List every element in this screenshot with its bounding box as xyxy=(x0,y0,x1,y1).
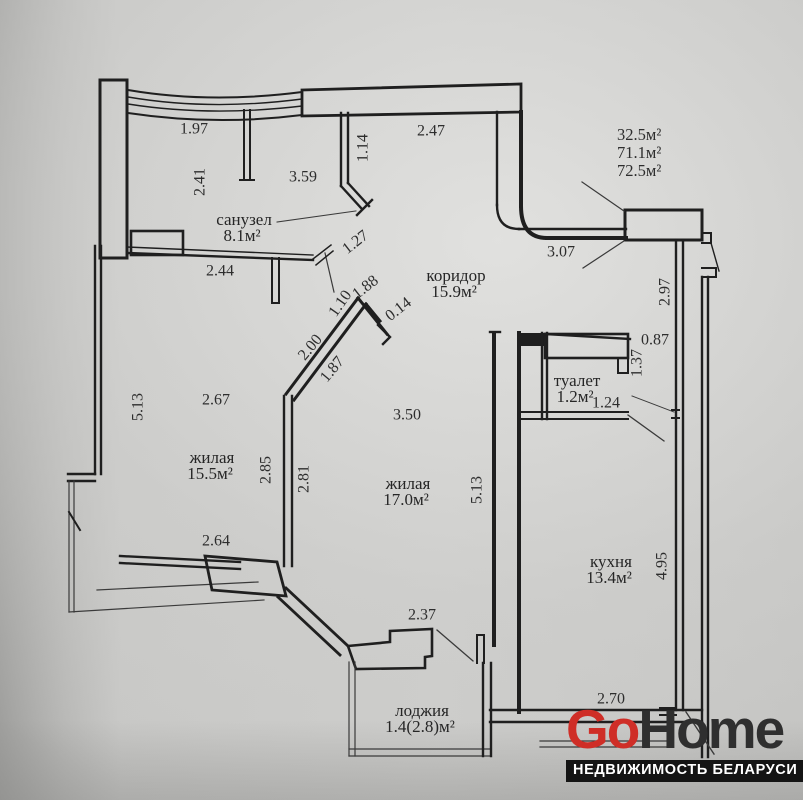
dimension-label: 1.87 xyxy=(317,353,348,385)
entrance-door-swing xyxy=(711,243,719,271)
leader-line xyxy=(583,241,624,268)
dimension-label: 4.95 xyxy=(654,552,671,580)
area-summary-item: 32.5м² xyxy=(617,125,661,144)
corridor-top-wall xyxy=(302,84,521,116)
dimension-label: 1.37 xyxy=(629,349,646,377)
floorplan-photo: 32.5м²71.1м²72.5м² 1.972.413.591.142.471… xyxy=(0,0,803,800)
dimension-label: 1.14 xyxy=(355,134,372,162)
dimension-label: 2.97 xyxy=(657,278,674,306)
bathroom-window-curve xyxy=(128,90,302,98)
leader-line xyxy=(582,182,624,211)
gohome-logo: GoHome НЕДВИЖИМОСТЬ БЕЛАРУСИ xyxy=(566,702,803,782)
logo-wordmark: GoHome xyxy=(566,702,803,757)
dimension-label: 1.97 xyxy=(180,121,208,138)
dimension-label: 0.87 xyxy=(641,332,669,349)
room-area-label: 15.5м² xyxy=(187,464,233,483)
bay-bottom-block xyxy=(348,629,432,669)
dimension-label: 2.47 xyxy=(417,123,445,140)
dimension-label: 0.14 xyxy=(382,294,415,325)
room-area-label: 17.0м² xyxy=(383,490,429,509)
dimension-label: 3.59 xyxy=(289,169,317,186)
room-area-label: 1.4(2.8)м² xyxy=(385,717,455,736)
entrance-wall-block xyxy=(625,210,702,240)
leader-line xyxy=(277,211,356,222)
dimension-label: 2.37 xyxy=(408,607,436,624)
room-labels: санузел8.1м²коридор15.9м²жилая15.5м²жила… xyxy=(187,210,632,736)
dimension-label: 2.64 xyxy=(202,533,230,550)
wall-pillar-topleft xyxy=(100,80,127,258)
dimension-label: 3.50 xyxy=(393,407,421,424)
logo-home: Home xyxy=(638,698,783,760)
dimension-label: 1.24 xyxy=(592,395,620,412)
room-area-label: 8.1м² xyxy=(223,226,260,245)
dimension-label: 2.67 xyxy=(202,392,230,409)
dimension-label: 2.85 xyxy=(258,456,275,484)
area-summary-item: 71.1м² xyxy=(617,143,661,162)
room-area-label: 15.9м² xyxy=(431,282,477,301)
logo-tagline: НЕДВИЖИМОСТЬ БЕЛАРУСИ xyxy=(566,760,803,782)
dimension-label: 1.27 xyxy=(339,227,372,258)
room-area-label: 13.4м² xyxy=(586,568,632,587)
dimension-label: 2.44 xyxy=(206,263,234,280)
dimension-label: 2.41 xyxy=(192,168,209,196)
wall-mass-bathroom xyxy=(131,231,183,255)
dimension-label: 5.13 xyxy=(469,476,486,504)
bathroom-door-swing xyxy=(325,253,334,292)
area-summary-item: 72.5м² xyxy=(617,161,661,180)
room-area-label: 1.2м² xyxy=(556,387,593,406)
dimension-label: 3.07 xyxy=(547,244,575,261)
logo-go: Go xyxy=(566,698,638,760)
area-summary: 32.5м²71.1м²72.5м² xyxy=(617,125,661,180)
loggia-door-swing xyxy=(437,630,473,661)
toilet-door-swing xyxy=(628,415,664,441)
floorplan-svg: 32.5м²71.1м²72.5м² 1.972.413.591.142.471… xyxy=(0,0,803,800)
dimension-label: 2.00 xyxy=(295,331,326,363)
dimension-label: 5.13 xyxy=(130,393,147,421)
dimension-label: 2.81 xyxy=(296,465,313,493)
dimension-labels: 1.972.413.591.142.471.272.441.881.100.14… xyxy=(130,121,674,708)
